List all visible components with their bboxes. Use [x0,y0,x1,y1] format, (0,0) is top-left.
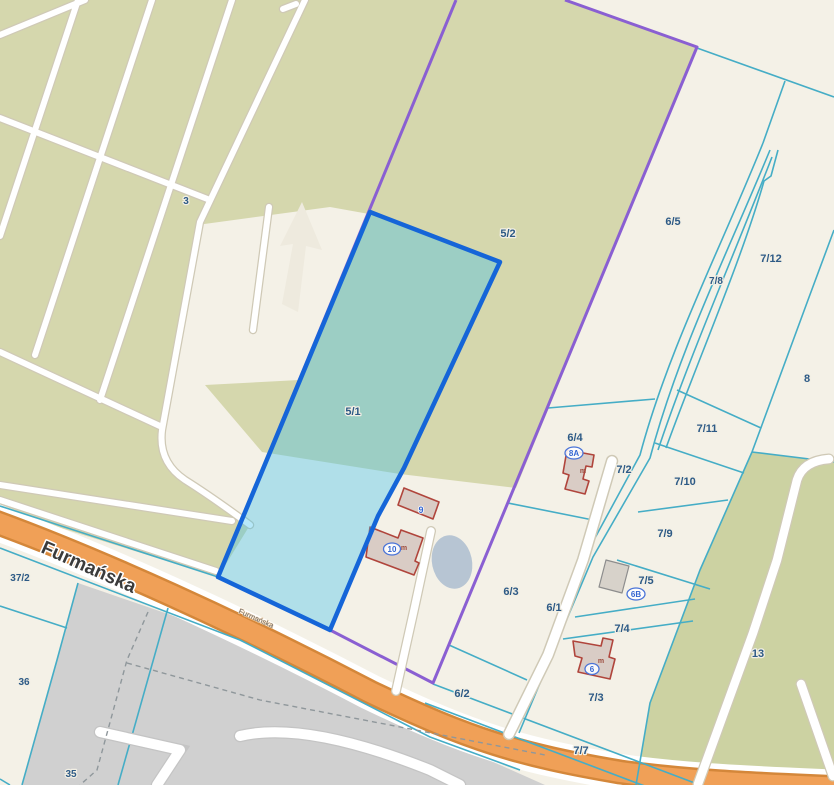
address-label-10: 10 [388,545,397,554]
parcel-label-13: 13 [752,648,764,660]
building-use-m-3: m [401,545,407,552]
parcel-label-5-2: 5/2 [500,228,515,240]
parcel-label-7-8: 7/8 [709,276,723,287]
cadastral-map-viewport[interactable]: 3 5/2 5/1 6/5 7/8 7/12 8 7/11 7/2 6/4 7/… [0,0,834,785]
parcel-label-7-12: 7/12 [760,253,781,265]
address-label-6: 6 [590,665,595,674]
parcel-label-3: 3 [183,196,189,207]
map-canvas[interactable]: 3 5/2 5/1 6/5 7/8 7/12 8 7/11 7/2 6/4 7/… [0,0,834,785]
parcel-label-6-4: 6/4 [567,432,583,444]
parcel-label-6-2: 6/2 [454,688,469,700]
parcel-label-7-5: 7/5 [638,575,653,587]
parcel-label-6-1: 6/1 [546,602,561,614]
parcel-label-37-2: 37/2 [10,573,30,584]
parcel-label-7-3: 7/3 [588,692,603,704]
parcel-label-7-9: 7/9 [657,528,672,540]
parcel-label-35: 35 [65,769,77,780]
parcel-label-7-11: 7/11 [697,423,718,435]
address-label-8a: 8A [569,449,579,458]
building-use-m-1: m [580,468,586,475]
address-label-6b: 6B [631,590,641,599]
parcel-label-6-5: 6/5 [665,216,680,228]
parcel-label-5-1: 5/1 [345,406,360,418]
parcel-label-36: 36 [18,677,30,688]
building-use-m-2: m [598,658,604,665]
address-label-9: 9 [418,505,423,515]
parcel-label-7-2: 7/2 [616,464,631,476]
parcel-label-7-4: 7/4 [614,623,630,635]
parcel-label-7-10: 7/10 [674,476,695,488]
parcel-label-8: 8 [804,373,810,385]
parcel-label-7-7: 7/7 [573,745,588,757]
parcel-label-6-3: 6/3 [503,586,518,598]
